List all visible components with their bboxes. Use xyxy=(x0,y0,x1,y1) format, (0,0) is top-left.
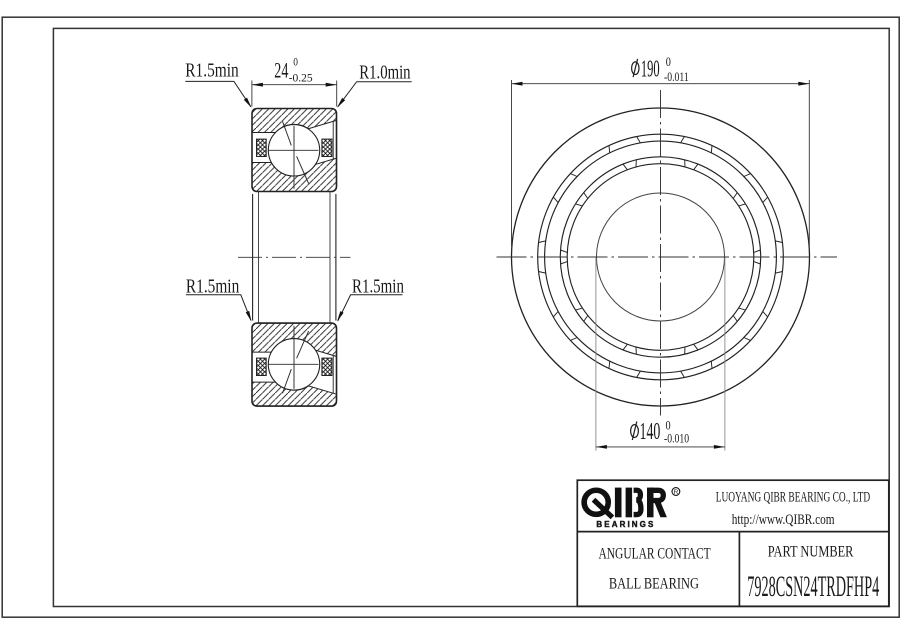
svg-text:24: 24 xyxy=(274,58,288,82)
svg-text:-0.25: -0.25 xyxy=(289,72,313,84)
svg-text:7928CSN24TRDFHP4: 7928CSN24TRDFHP4 xyxy=(747,570,879,603)
svg-text:190: 190 xyxy=(641,56,660,82)
svg-text:PART NUMBER: PART NUMBER xyxy=(768,543,854,561)
svg-text:-0.010: -0.010 xyxy=(664,432,689,445)
svg-text:BEARINGS: BEARINGS xyxy=(596,520,655,529)
svg-text:R1.0min: R1.0min xyxy=(359,60,410,83)
svg-text:R: R xyxy=(674,489,679,496)
svg-text:R1.5min: R1.5min xyxy=(186,274,239,297)
svg-text:http://www.QIBR.com: http://www.QIBR.com xyxy=(732,511,835,528)
svg-text:R1.5min: R1.5min xyxy=(352,274,404,297)
svg-text:0: 0 xyxy=(293,57,298,69)
svg-text:-0.011: -0.011 xyxy=(664,71,689,84)
svg-text:BALL BEARING: BALL BEARING xyxy=(609,575,699,593)
svg-text:LUOYANG QIBR BEARING CO., LTD: LUOYANG QIBR BEARING CO., LTD xyxy=(716,488,871,505)
svg-text:140: 140 xyxy=(640,419,661,445)
svg-text:R1.5min: R1.5min xyxy=(185,59,238,82)
svg-text:ANGULAR CONTACT: ANGULAR CONTACT xyxy=(599,545,712,562)
svg-text:0: 0 xyxy=(666,420,671,433)
svg-text:0: 0 xyxy=(666,56,671,69)
